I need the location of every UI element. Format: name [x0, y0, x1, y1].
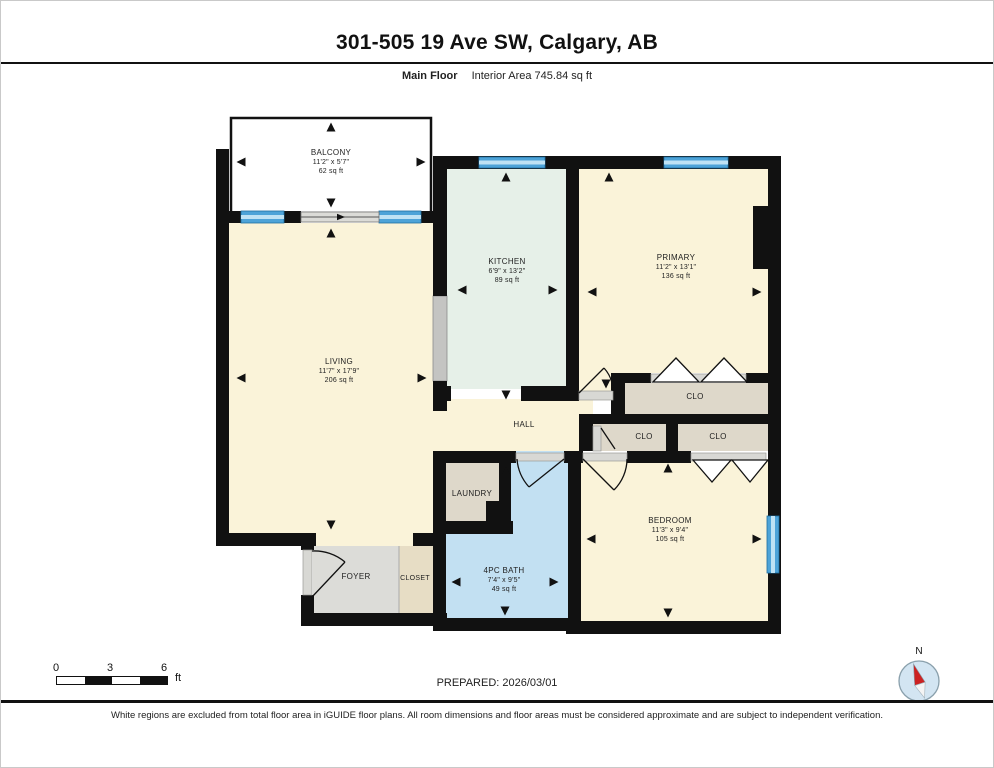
room-name: BALCONY	[271, 148, 391, 158]
room-area: 105 sq ft	[610, 535, 730, 544]
room-label-clo-mid-right: CLO	[688, 432, 748, 442]
room-label-bedroom: BEDROOM 11'3" x 9'4" 105 sq ft	[610, 516, 730, 545]
room-dimensions: 6'9" x 13'2"	[447, 267, 567, 276]
primary-window	[664, 157, 728, 168]
room-label-clo-mid-left: CLO	[614, 432, 674, 442]
room-dimensions: 11'3" x 9'4"	[610, 526, 730, 535]
room-area: 62 sq ft	[271, 167, 391, 176]
room-dimensions: 7'4" x 9'5"	[444, 576, 564, 585]
scale-tick-3: 3	[107, 662, 113, 674]
balcony-window-left	[241, 211, 284, 223]
footer-divider	[1, 700, 993, 703]
kitchen-window	[479, 157, 545, 168]
room-name: LAUNDRY	[432, 489, 512, 499]
room-name: CLO	[655, 392, 735, 402]
floorplan-drawing	[1, 1, 994, 768]
room-name: LIVING	[279, 357, 399, 367]
room-area: 206 sq ft	[279, 376, 399, 385]
room-area: 136 sq ft	[616, 272, 736, 281]
room-name: HALL	[484, 420, 564, 430]
kitchen-counter	[433, 296, 447, 381]
room-name: CLO	[688, 432, 748, 442]
room-dimensions: 11'7" x 17'9"	[279, 367, 399, 376]
prepared-date: PREPARED: 2026/03/01	[1, 677, 993, 689]
compass-north-label: N	[915, 646, 922, 657]
room-label-balcony: BALCONY 11'2" x 5'7" 62 sq ft	[271, 148, 391, 177]
room-dimensions: 11'2" x 5'7"	[271, 158, 391, 167]
room-label-hall: HALL	[484, 420, 564, 430]
compass: N	[891, 643, 947, 707]
room-label-foyer: FOYER	[316, 572, 396, 582]
room-name: CLO	[614, 432, 674, 442]
room-area: 89 sq ft	[447, 276, 567, 285]
room-label-bath: 4PC BATH 7'4" x 9'5" 49 sq ft	[444, 566, 564, 595]
room-label-living: LIVING 11'7" x 17'9" 206 sq ft	[279, 357, 399, 386]
sliding-door	[301, 212, 379, 222]
scale-tick-6: 6	[161, 662, 167, 674]
bedroom-window	[767, 516, 779, 573]
room-name: FOYER	[316, 572, 396, 582]
room-label-laundry: LAUNDRY	[432, 489, 512, 499]
floorplan-page: 301-505 19 Ave SW, Calgary, AB Main Floo…	[0, 0, 994, 768]
room-label-closet: CLOSET	[385, 574, 445, 583]
room-label-kitchen: KITCHEN 6'9" x 13'2" 89 sq ft	[447, 257, 567, 286]
disclaimer-text: White regions are excluded from total fl…	[1, 710, 993, 721]
room-dimensions: 11'2" x 13'1"	[616, 263, 736, 272]
room-area: 49 sq ft	[444, 585, 564, 594]
room-name: BEDROOM	[610, 516, 730, 526]
room-name: 4PC BATH	[444, 566, 564, 576]
room-label-primary: PRIMARY 11'2" x 13'1" 136 sq ft	[616, 253, 736, 282]
balcony-window-right	[379, 211, 421, 223]
room-name: PRIMARY	[616, 253, 736, 263]
room-name: CLOSET	[385, 574, 445, 583]
room-name: KITCHEN	[447, 257, 567, 267]
scale-tick-0: 0	[53, 662, 59, 674]
room-label-clo-top: CLO	[655, 392, 735, 402]
